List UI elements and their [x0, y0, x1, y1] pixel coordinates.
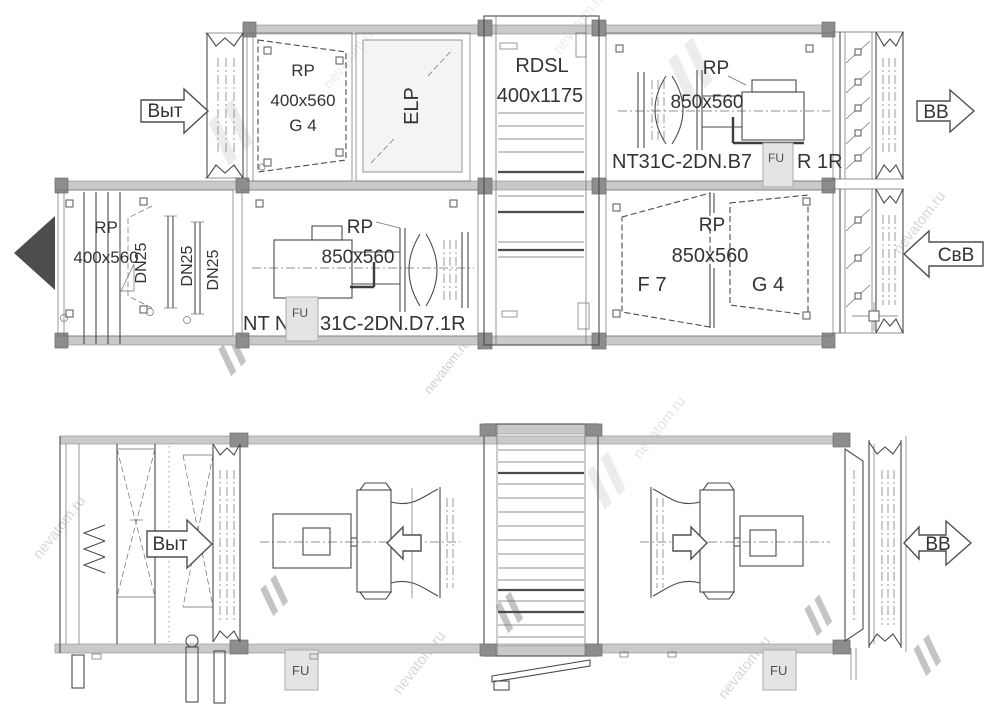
- elp-label: ELP: [401, 87, 423, 125]
- fan-b7-fu-label: FU: [768, 151, 784, 165]
- fan-b7-size: 850x560: [671, 92, 744, 113]
- support-leg: [72, 655, 84, 688]
- louver-slats-side: [498, 450, 584, 637]
- fan-b7-fu-box: [763, 143, 793, 187]
- side-fu-left-label: FU: [292, 663, 309, 678]
- side-fu-right-label: FU: [770, 663, 787, 678]
- ahu-drawing: nevatom.ru nevatom.ru nevatom.ru nevatom…: [0, 0, 1000, 710]
- dn25-label-2: DN25: [179, 245, 196, 286]
- fan-b7-model-left: NT31C-2DN.B7: [612, 151, 752, 173]
- fan-d7-size: 850x560: [322, 247, 395, 268]
- exhaust-arrow-label: Выт: [147, 101, 182, 122]
- dn25-label-3: DN25: [205, 249, 222, 290]
- fresh-air-arrow-label: СвВ: [938, 245, 975, 266]
- filter-g4-code: RP: [291, 61, 315, 80]
- side-view: Выт: [55, 424, 971, 703]
- damper-blades-mid: [846, 209, 870, 307]
- intake-filter-section: RP 400x560 DN25 DN25 DN25: [14, 190, 233, 344]
- fan-d7-section: RP 850x560 NT N FU 31C-2DN.D7.1R: [242, 190, 478, 341]
- fan-d7-model-right: 31C-2DN.D7.1R: [320, 313, 466, 335]
- fresh-air-zone: СвВ: [833, 189, 983, 333]
- filter-g4-grade-right: G 4: [752, 274, 784, 296]
- side-fan-left: [260, 483, 460, 599]
- flex-chevrons: [84, 525, 105, 573]
- fan-b7-section: RP 850x560 NT31C-2DN.B7 FU R 1R: [606, 33, 843, 187]
- elp-section: ELP: [356, 33, 470, 181]
- louver-column-plan: RDSL 400x1175: [484, 16, 599, 345]
- watermark-text: nevatom.ru: [630, 393, 690, 463]
- watermark-text: nevatom.ru: [421, 336, 473, 396]
- side-right-end: ВВ: [845, 436, 971, 680]
- filter-f7-grade: F 7: [638, 274, 667, 296]
- supply-outlet-zone: ВВ: [833, 32, 974, 179]
- intake-arrow: [14, 216, 55, 290]
- supply-arrow-top-label: ВВ: [923, 102, 948, 123]
- side-fan-right: [640, 483, 830, 599]
- filter-g4-size: 400x560: [270, 91, 335, 110]
- side-fan-right-arrow: [673, 527, 707, 559]
- side-fan-left-arrow: [387, 527, 421, 559]
- side-exhaust-arrow-label: Выт: [152, 534, 187, 555]
- fan-d7-fu-label: FU: [292, 306, 308, 320]
- drain-pipe: [214, 651, 225, 703]
- dn25-label-1: DN25: [133, 242, 150, 283]
- side-left-compartment: Выт: [79, 444, 240, 644]
- watermark-text: nevatom.ru: [390, 628, 450, 698]
- filter-f7g4-code: RP: [699, 215, 725, 236]
- filter-400-code: RP: [94, 218, 118, 237]
- damper-blades-top: [846, 41, 870, 169]
- plan-view: Выт RP 400x560 G 4 ELP: [14, 16, 983, 349]
- filter-f7g4-section: RP 850x560 F 7 G 4: [606, 190, 833, 336]
- drain-pipe: [186, 647, 198, 702]
- side-supply-arrow-label: ВВ: [925, 534, 950, 555]
- filter-g4-grade: G 4: [289, 116, 316, 135]
- louver-column-side: [480, 424, 602, 690]
- louver-handle: [492, 660, 590, 682]
- filter-f7g4-size: 850x560: [672, 245, 749, 267]
- fan-d7-code: RP: [347, 217, 373, 238]
- filter-400-size: 400x560: [73, 248, 138, 267]
- fan-b7-model-right: R 1R: [797, 151, 843, 173]
- filter-g4-section: RP 400x560 G 4: [247, 33, 352, 181]
- louver-size: 400x1175: [497, 85, 583, 107]
- ahu-drawing-canvas: nevatom.ru nevatom.ru nevatom.ru nevatom…: [0, 0, 1000, 710]
- fan-b7-code: RP: [703, 58, 729, 79]
- louver-code: RDSL: [515, 55, 568, 77]
- fan-d7-model-left: NT N: [243, 313, 289, 335]
